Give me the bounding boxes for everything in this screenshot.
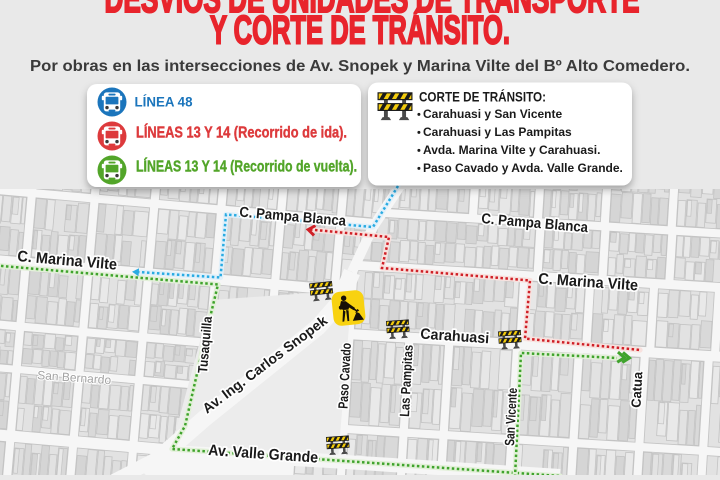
svg-text:LÍNEAS 13 Y 14 (Recorrido de v: LÍNEAS 13 Y 14 (Recorrido de vuelta). [136, 157, 357, 176]
svg-text:Catua: Catua [629, 371, 646, 408]
svg-text:Avda. Marina Vilte y Carahuasi: Avda. Marina Vilte y Carahuasi. [423, 143, 600, 157]
svg-text:Carahuasi y Las Pampitas: Carahuasi y Las Pampitas [423, 125, 572, 139]
svg-text:Paso Cavado y Avda. Valle Gran: Paso Cavado y Avda. Valle Grande. [423, 161, 623, 175]
svg-text:CORTE DE TRÁNSITO:: CORTE DE TRÁNSITO: [419, 89, 546, 105]
svg-text:LÍNEAS 13 Y 14 (Recorrido de i: LÍNEAS 13 Y 14 (Recorrido de ida). [136, 123, 347, 142]
svg-text:Por obras en las interseccione: Por obras en las intersecciones de Av. S… [30, 58, 690, 75]
svg-text:San Vicente: San Vicente [502, 387, 520, 446]
svg-text:Carahuasi y San Vicente: Carahuasi y San Vicente [423, 107, 563, 121]
svg-text:Y CORTE DE TRÁNSITO.: Y CORTE DE TRÁNSITO. [210, 8, 510, 53]
svg-text:LÍNEA 48: LÍNEA 48 [135, 95, 193, 110]
